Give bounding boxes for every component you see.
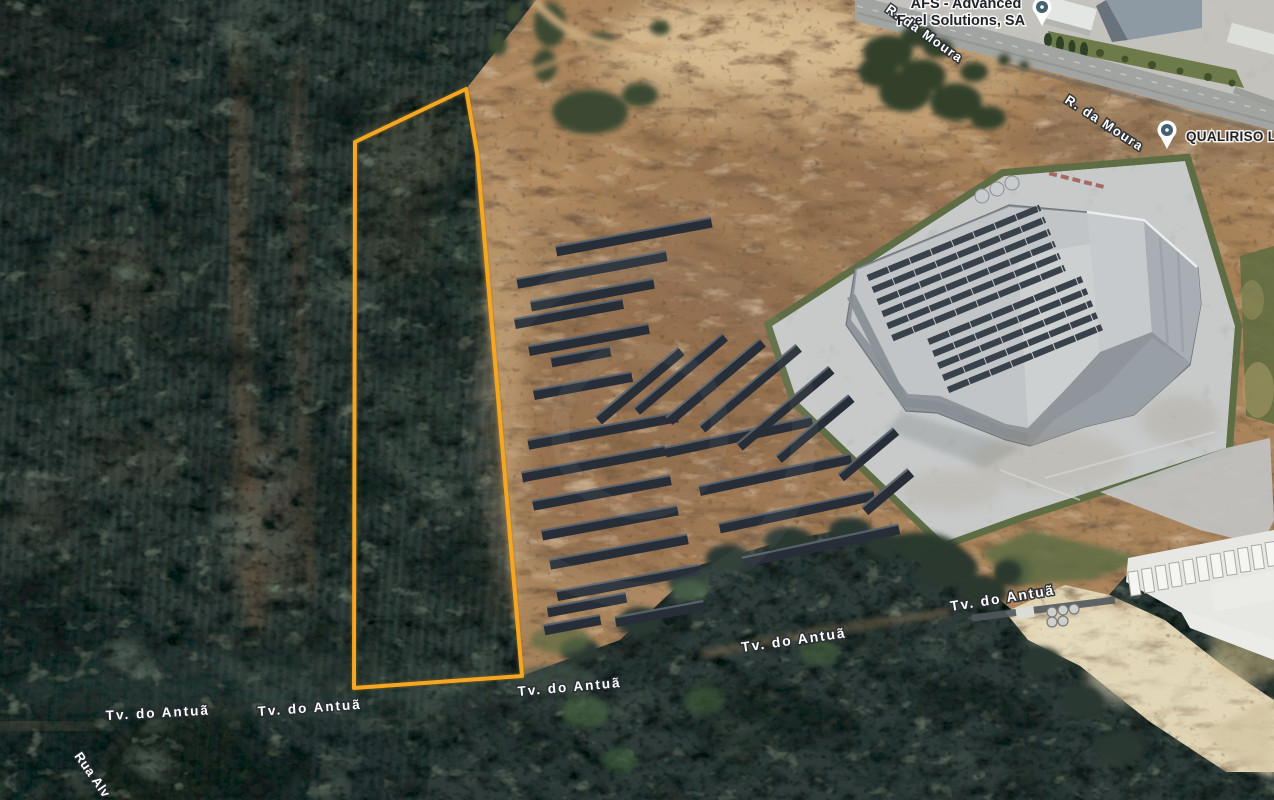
svg-text:QUALIRISO L: QUALIRISO L <box>1186 129 1274 144</box>
svg-text:AFS - Advanced: AFS - Advanced <box>911 0 1022 12</box>
